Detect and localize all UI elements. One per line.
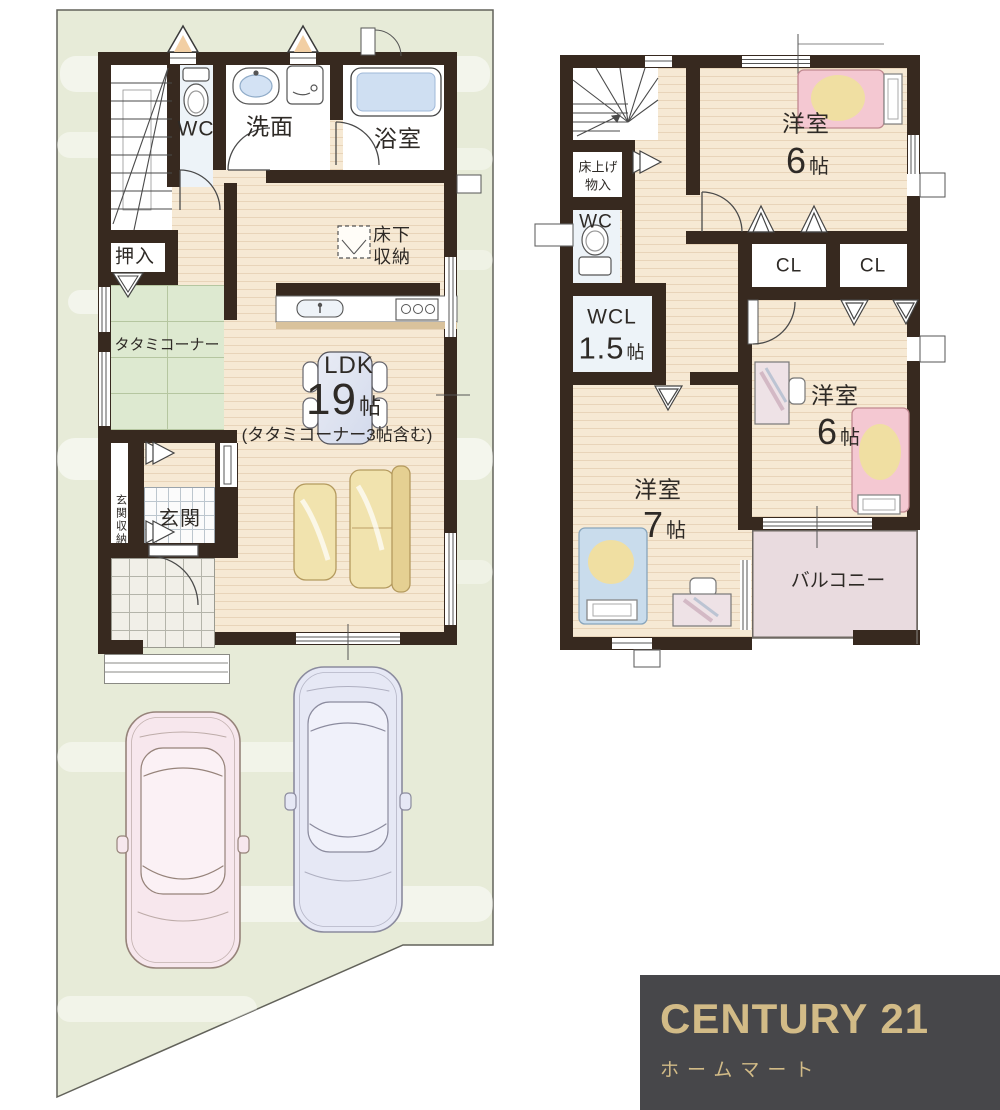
- step-chevron-icon-2f: [633, 151, 661, 173]
- room-size-ldk: 19帖: [306, 378, 382, 422]
- bed-icon-bedroom-c: [579, 528, 647, 624]
- room-size-wcl: 1.5帖: [578, 333, 645, 364]
- room-label-underfloor-2: 収納: [373, 248, 411, 266]
- sliding-door-icon: [220, 443, 237, 487]
- century21-logo-brand: CENTURY 21: [660, 995, 1000, 1043]
- room-label-tatami-corner: タタミコーナー: [114, 338, 219, 353]
- room-label-genkan: 玄関: [159, 509, 201, 529]
- room-label-genkan-storage: 玄関収納: [115, 494, 126, 546]
- room-note-ldk: (タタミコーナー3帖含む): [242, 427, 433, 444]
- stairs-fan-icon: [573, 68, 658, 136]
- plan-details: [0, 0, 1000, 1110]
- room-label-closet-b: CL: [860, 257, 886, 276]
- door-arcs-floor2: [535, 192, 795, 667]
- sofa-icon: [294, 466, 410, 592]
- toilet-icon-2f: [579, 225, 611, 275]
- room-label-floor-storage-2: 物入: [585, 179, 611, 192]
- toilet-icon: [183, 68, 209, 116]
- room-size-bedroom-c: 7帖: [643, 507, 687, 543]
- folding-door-marker: [113, 273, 143, 297]
- century21-logo-store: ホームマート: [660, 1055, 1000, 1082]
- room-label-underfloor-1: 床下: [373, 226, 411, 244]
- century21-logo: CENTURY 21 ホームマート: [640, 975, 1000, 1110]
- room-label-bedroom-c: 洋室: [634, 479, 682, 502]
- windows-floor2: [612, 34, 945, 649]
- porch-step-lines: [104, 663, 228, 672]
- underfloor-storage-icon: [338, 226, 370, 258]
- desk-icon-bedroom-b: [755, 362, 805, 424]
- room-label-balcony: バルコニー: [791, 572, 886, 591]
- room-label-closet-a: CL: [776, 257, 802, 276]
- floorplan-canvas: WC 洗面 浴室 床下 収納 押入 タタミコーナー LDK 19帖 (タタミコー…: [0, 0, 1000, 1110]
- room-label-washroom: 洗面: [246, 116, 294, 139]
- washbasin-icon: [233, 66, 323, 104]
- room-label-wc-2f: WC: [579, 213, 613, 232]
- room-size-bedroom-b: 6帖: [817, 414, 861, 450]
- room-label-floor-storage-1: 床上げ: [578, 161, 617, 174]
- bay-window-triangles: [168, 26, 318, 52]
- room-label-bedroom-a: 洋室: [782, 113, 830, 136]
- room-size-bedroom-a: 6帖: [786, 143, 830, 179]
- room-label-bath: 浴室: [374, 128, 422, 151]
- room-label-wc-1f: WC: [178, 119, 215, 140]
- kitchen-counter-icon: [276, 296, 457, 329]
- room-label-bedroom-b: 洋室: [811, 385, 859, 408]
- bathtub-icon: [351, 68, 441, 116]
- desk-icon-bedroom-c: [673, 578, 731, 626]
- room-label-oshiire: 押入: [115, 248, 155, 267]
- stairs-icon: [111, 68, 172, 230]
- room-label-wcl: WCL: [587, 307, 637, 328]
